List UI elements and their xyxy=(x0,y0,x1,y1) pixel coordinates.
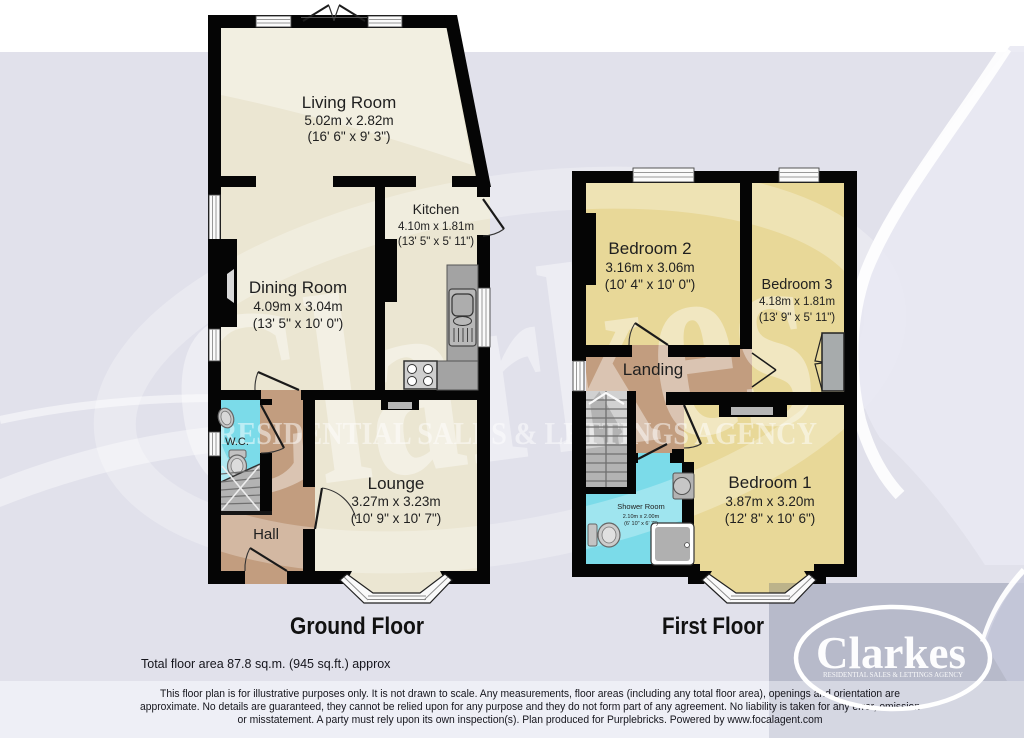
svg-text:Total floor area 87.8 sq.m. (9: Total floor area 87.8 sq.m. (945 sq.ft.)… xyxy=(141,657,391,671)
svg-text:Kitchen: Kitchen xyxy=(413,201,460,217)
svg-text:3.27m x 3.23m: 3.27m x 3.23m xyxy=(351,494,440,509)
svg-text:(13' 9" x 5' 11"): (13' 9" x 5' 11") xyxy=(759,312,835,324)
svg-text:Bedroom 3: Bedroom 3 xyxy=(762,277,833,293)
svg-text:4.10m x 1.81m: 4.10m x 1.81m xyxy=(398,221,474,233)
svg-text:2.10m x 2.00m: 2.10m x 2.00m xyxy=(623,514,660,520)
svg-text:(13' 5" x 10' 0"): (13' 5" x 10' 0") xyxy=(253,316,344,331)
svg-text:4.18m x 1.81m: 4.18m x 1.81m xyxy=(759,296,835,308)
svg-text:Hall: Hall xyxy=(253,526,279,543)
svg-text:Shower Room: Shower Room xyxy=(617,502,665,511)
svg-text:Living Room: Living Room xyxy=(302,93,397,112)
svg-text:3.87m x 3.20m: 3.87m x 3.20m xyxy=(725,494,814,509)
svg-text:(16' 6" x 9' 3"): (16' 6" x 9' 3") xyxy=(307,129,390,144)
svg-text:(6' 10" x 6' 7"): (6' 10" x 6' 7") xyxy=(624,521,658,527)
svg-text:This floor plan is for illustr: This floor plan is for illustrative purp… xyxy=(160,688,900,700)
svg-text:or misstatement. A party must: or misstatement. A party must rely upon … xyxy=(238,714,823,726)
svg-text:(10' 9" x 10' 7"): (10' 9" x 10' 7") xyxy=(351,511,442,526)
svg-text:3.16m x 3.06m: 3.16m x 3.06m xyxy=(605,260,694,275)
svg-text:Lounge: Lounge xyxy=(368,474,425,493)
svg-text:5.02m x 2.82m: 5.02m x 2.82m xyxy=(304,113,393,128)
svg-text:Ground Floor: Ground Floor xyxy=(290,613,424,640)
svg-text:Bedroom 2: Bedroom 2 xyxy=(608,239,691,258)
svg-text:Landing: Landing xyxy=(623,360,684,379)
svg-text:First Floor: First Floor xyxy=(662,613,764,640)
svg-text:4.09m x 3.04m: 4.09m x 3.04m xyxy=(253,299,342,314)
svg-text:Bedroom 1: Bedroom 1 xyxy=(728,473,811,492)
svg-text:(10' 4" x 10' 0"): (10' 4" x 10' 0") xyxy=(605,277,696,292)
svg-text:(12' 8" x 10' 6"): (12' 8" x 10' 6") xyxy=(725,511,816,526)
svg-text:approximate. No details are gu: approximate. No details are guaranteed, … xyxy=(140,701,920,713)
svg-text:RESIDENTIAL SALES & LETTINGS A: RESIDENTIAL SALES & LETTINGS AGENCY xyxy=(823,671,963,679)
svg-text:(13' 5" x 5' 11"): (13' 5" x 5' 11") xyxy=(398,236,474,248)
svg-text:Dining Room: Dining Room xyxy=(249,278,347,297)
svg-text:W.C.: W.C. xyxy=(225,436,249,448)
